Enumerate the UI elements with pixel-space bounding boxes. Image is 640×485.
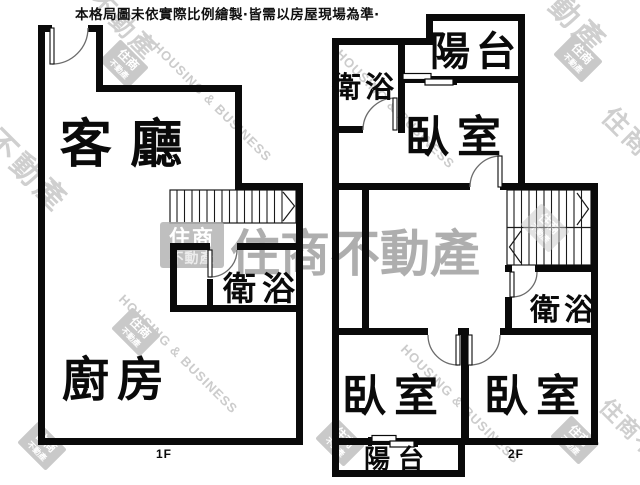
stair-direction-arrow-icon [510,231,522,263]
floor1-label: 1F [156,447,172,461]
watermark-diagonal-text: 住商不動產 [594,394,640,480]
watermark-diagonal-text: 住商不動產 [596,101,640,225]
room-label-bedroom-2f-right: 臥室 [484,371,588,421]
door-bedroom-2f-right-icon [468,335,500,365]
floor-plan-svg: 住商 不動產 住商不動產 不動產 不動產 不動產 住商不動產 住商不動產 HOU… [0,0,640,480]
watermark-small-logo: 住商 不動產 [520,203,569,252]
door-bedroom-2f-left-icon [428,335,460,365]
stair-direction-arrow-icon [577,193,589,225]
room-label-kitchen: 廚房 [62,353,172,406]
stair-direction-arrow-icon [283,192,295,221]
room-label-bathroom-2f-mid: 衛浴 [529,294,598,327]
room-label-bedroom-2f-left: 臥室 [342,371,446,421]
floor-plan-image: 住商 不動產 住商不動產 不動產 不動產 不動產 住商不動產 住商不動產 HOU… [0,0,640,480]
room-label-bathroom-2f-top: 衛浴 [331,71,398,104]
disclaimer-text: 本格局圖未依實際比例繪製‧皆需以房屋現場為準‧ [75,6,379,22]
room-label-balcony-2f-bottom: 陽台 [364,444,432,474]
entry-door-icon [50,28,88,64]
window-2f-top-icon [399,74,457,86]
floor2-label: 2F [508,447,524,461]
watermark-small-logo: 住商 不動產 [111,307,160,356]
room-label-bedroom-2f-top: 臥室 [405,112,509,162]
stairs-1f-icon [170,190,296,223]
room-label-balcony-2f-top: 陽台 [430,30,522,74]
room-label-living-room: 客 廳 [60,116,184,174]
room-label-bathroom-1f: 衛浴 [222,270,301,307]
